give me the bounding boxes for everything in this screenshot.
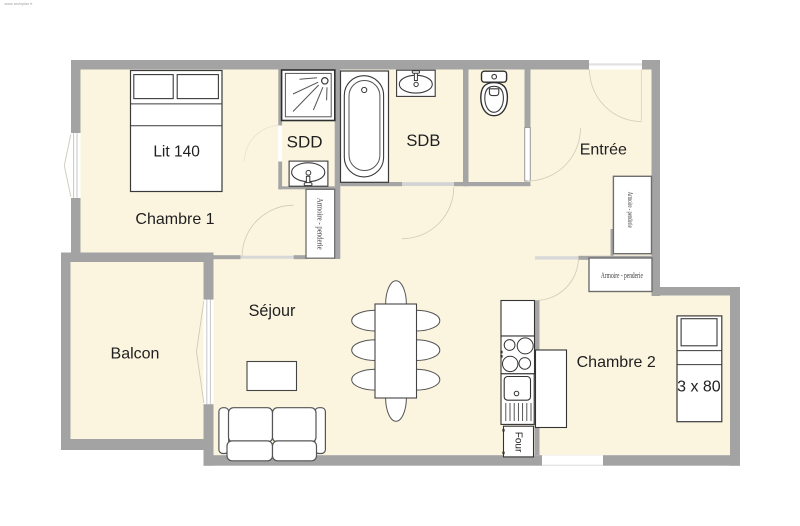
- svg-text:www archiplan fr: www archiplan fr: [5, 2, 34, 6]
- svg-text:SDD: SDD: [287, 132, 323, 151]
- svg-text:Armoire - penderie: Armoire - penderie: [316, 198, 325, 250]
- svg-text:Chambre 1: Chambre 1: [135, 211, 214, 228]
- svg-text:Balcon: Balcon: [111, 346, 160, 363]
- svg-text:Chambre 2: Chambre 2: [577, 354, 656, 371]
- svg-text:Lit 140: Lit 140: [153, 143, 200, 160]
- svg-text:Armoire - penderie: Armoire - penderie: [626, 192, 635, 228]
- svg-text:Séjour: Séjour: [249, 302, 296, 320]
- svg-text:3 x 80: 3 x 80: [677, 379, 721, 396]
- svg-text:Four: Four: [513, 432, 524, 453]
- svg-text:Entrée: Entrée: [580, 142, 627, 159]
- svg-text:Armoire - penderie: Armoire - penderie: [601, 271, 643, 280]
- svg-text:SDB: SDB: [406, 132, 440, 150]
